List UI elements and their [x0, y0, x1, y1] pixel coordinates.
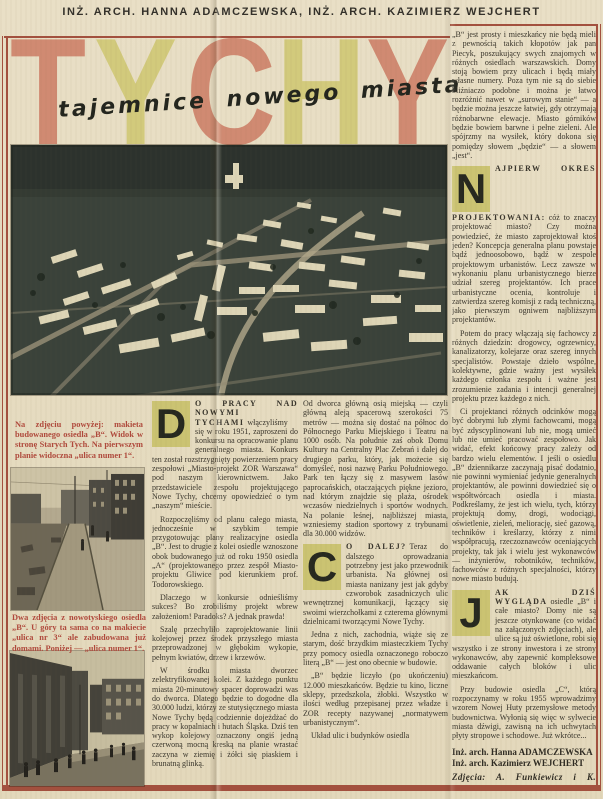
paragraph-do-pracy: DO PRACY NAD NOWYMI TYCHAMIwłączyliśmy s…	[152, 399, 298, 511]
paragraph-b-jest-prosty: „B“ jest prosty i mieszkańcy nie będą mi…	[452, 30, 596, 160]
photo-credit: Zdjęcia: A. Funkiewicz i K. Wejchert	[452, 772, 596, 782]
credit-author-2: Inż. arch. Kazimierz WEJCHERT	[452, 758, 596, 769]
magazine-page: INŻ. ARCH. HANNA ADAMCZEWSKA, INŻ. ARCH.…	[0, 0, 603, 799]
frame-left-rule-inner	[6, 36, 8, 789]
article-column-right: „B“ jest prosty i mieszkańcy nie będą mi…	[452, 30, 596, 782]
paragraph: W środku miasta dworzec zelektryfikowane…	[152, 666, 298, 768]
frame-left-rule	[2, 36, 3, 789]
article-column-middle: Od dworca główną osią miejską — czyli gł…	[303, 399, 448, 787]
paragraph: Szalę przechyliło zaprojektowanie linii …	[152, 625, 298, 662]
paragraph-jak-dzis-wyglada: JAK DZIŚ WYGLĄDAosiedle „B“ i całe miast…	[452, 588, 596, 681]
drop-cap-j: J	[452, 590, 490, 636]
drop-cap-n: N	[452, 166, 490, 212]
drop-cap-c: C	[303, 544, 341, 590]
paragraph: Ci projektanci różnych odcinków mogą być…	[452, 407, 596, 584]
paragraph: Układ ulic i budynków osiedla	[303, 731, 448, 740]
article-credits: Inż. arch. Hanna ADAMCZEWSKA Inż. arch. …	[452, 747, 596, 782]
article-column-left: DO PRACY NAD NOWYMI TYCHAMIwłączyliśmy s…	[152, 399, 298, 787]
paragraph: Potem do pracy włączają się fachowcy z r…	[452, 329, 596, 403]
paragraph: Przy budowie osiedla „C“, którą rozpoczy…	[452, 685, 596, 741]
paragraph: Dlaczego w konkursie odnieśliśmy sukces?…	[152, 593, 298, 621]
paragraph: Jedna z nich, zachodnia, wiąże się ze st…	[303, 630, 448, 667]
pedestrians-street-photo	[10, 651, 144, 786]
paragraph: „B“ będzie liczyło (po ukończeniu) 12.00…	[303, 671, 448, 727]
construction-street-photo	[11, 468, 144, 610]
paragraph-od-dworca: Od dworca główną osią miejską — czyli gł…	[303, 399, 448, 538]
paragraph-co-dalej: CO DALEJ?Teraz do dalszego oprowadzania …	[303, 542, 448, 626]
frame-right-rule	[600, 24, 601, 789]
city-model-photo	[11, 145, 447, 395]
photo-caption-streets: Dwa zdjęcia z nowotyskiego osiedla „B“. …	[12, 613, 146, 654]
drop-cap-d: D	[152, 401, 190, 447]
frame-top-right-rule	[450, 24, 597, 26]
paragraph-najpierw-okres: NAJPIERW OKRES PROJEKTOWANIA:cóż to znac…	[452, 164, 596, 325]
credit-author-1: Inż. arch. Hanna ADAMCZEWSKA	[452, 747, 596, 758]
photo-caption-model: Na zdjęciu powyżej: makieta budowanego o…	[15, 420, 143, 461]
frame-right-rule-inner	[596, 24, 598, 789]
paragraph: Rozpoczęliśmy od planu całego miasta, je…	[152, 515, 298, 589]
page-header-authors: INŻ. ARCH. HANNA ADAMCZEWSKA, INŻ. ARCH.…	[0, 6, 603, 18]
title-letter-t: T	[10, 40, 86, 144]
